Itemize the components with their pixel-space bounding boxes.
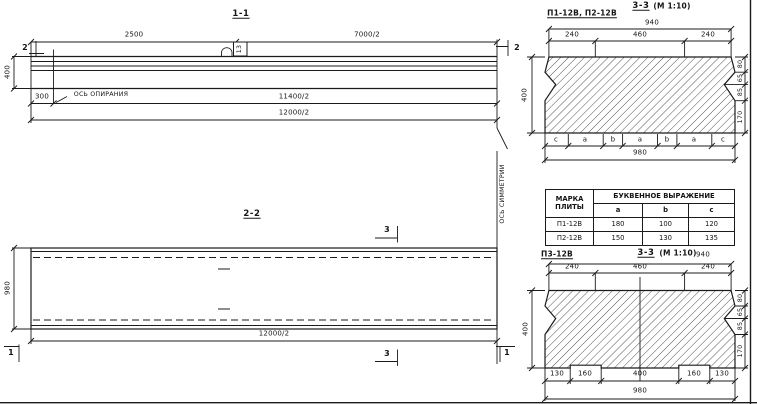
sa-dim-65: 65: [738, 74, 744, 82]
section-marker-3-bottom: 3: [384, 350, 390, 358]
view-2-2-title: 2-2: [243, 210, 260, 219]
sb-dim-240-right: 240: [701, 264, 715, 271]
sb-dim-980: 980: [633, 388, 647, 395]
cell-c: 135: [689, 232, 735, 246]
section-a-title: 3-3: [632, 2, 649, 11]
table-header-expression: БУКВЕННОЕ ВЫРАЖЕНИЕ: [594, 190, 735, 204]
sb-dim-170: 170: [738, 345, 744, 358]
section-b-geometry: [527, 261, 748, 402]
dim-400-side: 400: [5, 65, 12, 79]
lifting-loop-ref: 13: [237, 45, 243, 53]
sb-dim-65: 65: [738, 308, 744, 316]
sa-dim-240-right: 240: [701, 32, 715, 39]
sb-dim-400: 400: [523, 322, 530, 336]
view-1-1-geometry: [11, 39, 508, 128]
section-a-subtitle: П1-12В, П2-12В: [547, 9, 617, 17]
cell-marka: П2-12В: [546, 232, 594, 246]
section-marker-1-left: 1: [8, 349, 14, 357]
table-header-marka: МАРКА ПЛИТЫ: [546, 190, 594, 218]
sa-letter-c1: c: [554, 137, 558, 144]
section-b-scale: (М 1:10): [659, 249, 696, 257]
cell-marka: П1-12В: [546, 218, 594, 232]
sb-dim-85: 85: [738, 322, 744, 330]
dim-7000-2: 7000/2: [354, 32, 380, 39]
sa-dim-80: 80: [738, 60, 744, 68]
blueprint-canvas: 1-1 2500 7000/2 2 2 400 300 ОСЬ ОПИРАНИЯ…: [0, 0, 757, 404]
sb-dim-130-left: 130: [550, 371, 564, 378]
sa-dim-240-left: 240: [565, 32, 579, 39]
sa-letter-a1: a: [583, 137, 588, 144]
dim-12000-2-elevation: 12000/2: [279, 110, 309, 117]
sb-dim-940: 940: [696, 252, 710, 259]
section-marker-1-right: 1: [504, 349, 510, 357]
section-b-subtitle: П3-12В: [541, 250, 573, 258]
sa-dim-85: 85: [738, 88, 744, 96]
sa-letter-b1: b: [611, 137, 616, 144]
sa-dim-940: 940: [645, 20, 659, 27]
table-row: П1-12В 180 100 120: [546, 218, 735, 232]
table-subheader-c: c: [689, 204, 735, 218]
cell-a: 150: [594, 232, 643, 246]
sa-letter-a3: a: [692, 137, 697, 144]
cell-a: 180: [594, 218, 643, 232]
dim-300: 300: [35, 94, 49, 101]
sa-letter-a2: a: [638, 137, 643, 144]
sa-dim-460: 460: [633, 32, 647, 39]
table-row: П2-12В 150 130 135: [546, 232, 735, 246]
sa-dim-980: 980: [633, 150, 647, 157]
sb-dim-240-left: 240: [565, 264, 579, 271]
view-1-1-title: 1-1: [232, 10, 249, 19]
section-b-title: 3-3: [637, 249, 654, 258]
sb-dim-160-right: 160: [687, 371, 701, 378]
sb-dim-400-bottom: 400: [633, 371, 647, 378]
slab-letter-values-table: МАРКА ПЛИТЫ БУКВЕННОЕ ВЫРАЖЕНИЕ a b c П1…: [545, 189, 735, 246]
sb-dim-160-left: 160: [578, 371, 592, 378]
dim-12000-2-plan: 12000/2: [259, 331, 289, 338]
sa-letter-c2: c: [721, 137, 725, 144]
table-subheader-a: a: [594, 204, 643, 218]
section-a-scale: (М 1:10): [653, 2, 690, 10]
table-subheader-b: b: [643, 204, 689, 218]
section-marker-2-right: 2: [514, 44, 520, 52]
sa-dim-400: 400: [522, 88, 529, 102]
dim-2500: 2500: [125, 32, 144, 39]
sa-letter-b2: b: [665, 137, 670, 144]
dim-980-side: 980: [5, 281, 12, 295]
sa-dim-170: 170: [738, 111, 744, 124]
cell-b: 130: [643, 232, 689, 246]
sb-dim-130-right: 130: [715, 371, 729, 378]
section-marker-3-top: 3: [384, 226, 390, 234]
section-marker-2-left: 2: [22, 44, 28, 52]
dim-11400-2: 11400/2: [279, 94, 309, 101]
symmetry-axis-label: ОСЬ СИММЕТРИИ: [500, 164, 506, 223]
cell-b: 100: [643, 218, 689, 232]
cell-c: 120: [689, 218, 735, 232]
sb-dim-80: 80: [738, 294, 744, 302]
sb-dim-460: 460: [633, 264, 647, 271]
support-axis-label: ОСЬ ОПИРАНИЯ: [74, 92, 128, 98]
